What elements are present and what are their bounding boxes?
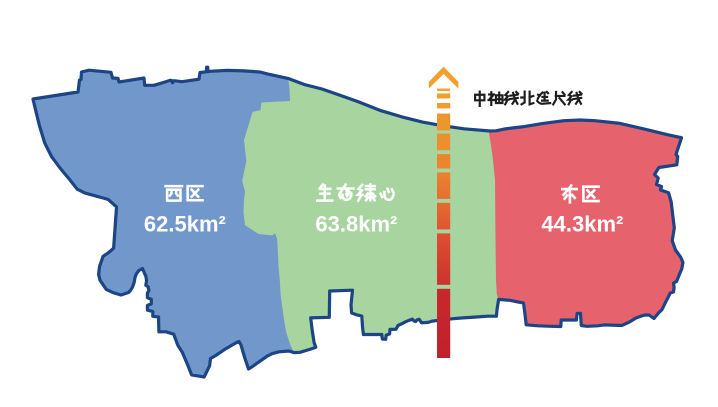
svg-text:63.8km²: 63.8km² (315, 212, 397, 237)
svg-text:62.5km²: 62.5km² (144, 212, 226, 237)
svg-text:44.3km²: 44.3km² (541, 212, 623, 237)
